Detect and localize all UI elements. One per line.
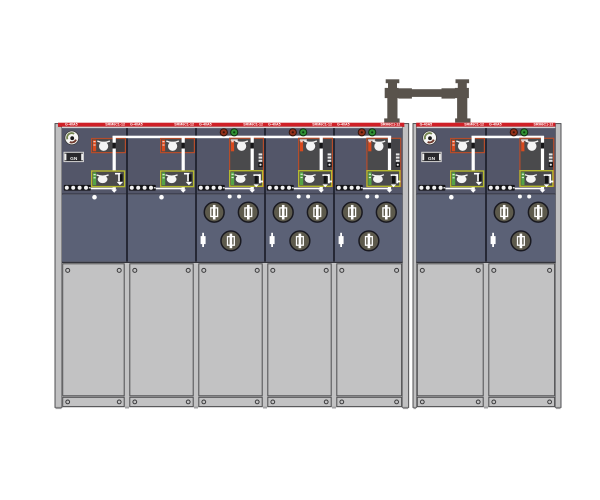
svg-text:GN: GN (70, 156, 78, 162)
svg-text:G-40A5: G-40A5 (420, 123, 433, 127)
svg-text:G-40A5: G-40A5 (130, 123, 143, 127)
svg-text:G-40A5: G-40A5 (199, 123, 212, 127)
svg-text:SRM6C1-12: SRM6C1-12 (243, 123, 263, 127)
svg-text:G-40A5: G-40A5 (337, 123, 350, 127)
svg-text:G-40A5: G-40A5 (65, 123, 78, 127)
svg-text:G-40A5: G-40A5 (268, 123, 281, 127)
svg-text:SRM6C1-12: SRM6C1-12 (464, 123, 484, 127)
svg-text:SRM6C1-12: SRM6C1-12 (381, 123, 401, 127)
svg-text:SRM6C1-12: SRM6C1-12 (105, 123, 125, 127)
svg-text:GN: GN (428, 156, 436, 162)
svg-text:G-40A5: G-40A5 (489, 123, 502, 127)
svg-text:SRM6C1-12: SRM6C1-12 (174, 123, 194, 127)
svg-text:SRM6C1-12: SRM6C1-12 (312, 123, 332, 127)
svg-text:SRM6C1-12: SRM6C1-12 (534, 123, 554, 127)
